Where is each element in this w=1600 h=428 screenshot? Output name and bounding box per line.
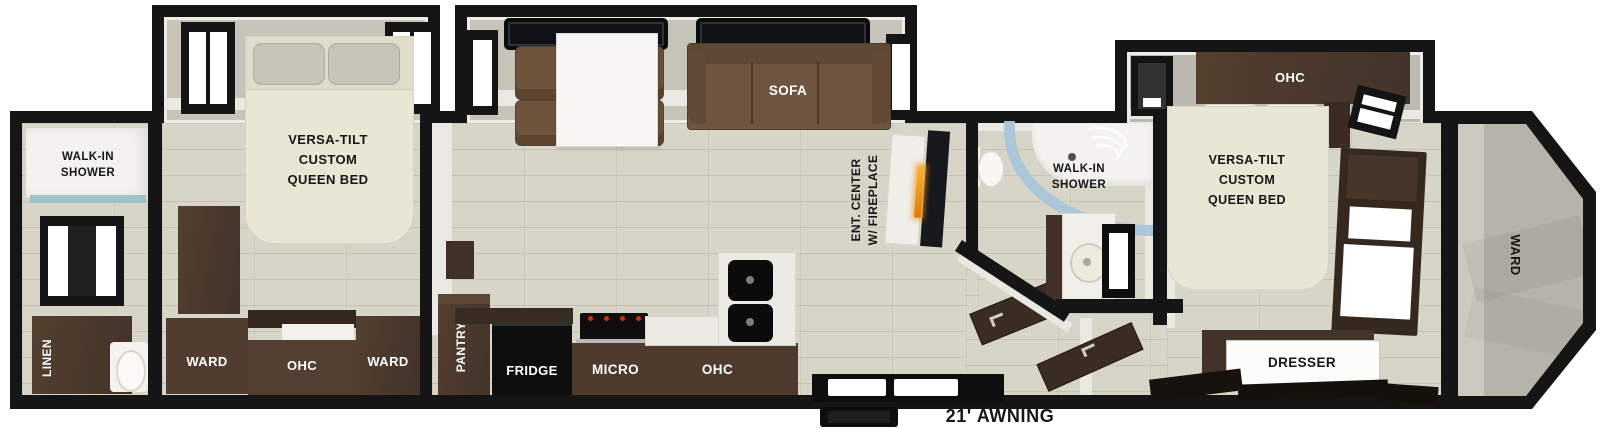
wall-midbath-left (966, 111, 978, 253)
entertainment-center (882, 126, 964, 255)
wall-bedroom-nose (1441, 111, 1457, 409)
living-window-left (467, 30, 498, 115)
rear-bed-pillow-left (253, 43, 325, 85)
front-window-unit (1331, 148, 1431, 338)
dinette-table (556, 33, 658, 147)
front-window-pane-lower (1340, 244, 1414, 320)
rear-ohc-shelf (282, 324, 354, 340)
rear-bedroom-side-cabinet (178, 206, 240, 314)
entry-door-threshold (812, 374, 1004, 402)
front-window-pane-upper (1348, 206, 1412, 241)
entry-exterior-step (820, 407, 898, 427)
living-wall-cabinet (446, 241, 474, 279)
kitchen-sink-upper (728, 260, 773, 301)
stove-cooktop (580, 313, 648, 341)
vanity-cabinet (1046, 215, 1062, 305)
front-ohc-label: OHC (1235, 62, 1345, 92)
kitchen-counter-bottom (645, 316, 727, 346)
dresser-label: DRESSER (1226, 340, 1378, 385)
rear-slide-window-left (181, 22, 235, 114)
linen-label: LINEN (38, 318, 56, 398)
mid-shower-label: WALK-INSHOWER (1040, 158, 1118, 196)
mid-toilet-bowl (977, 150, 1005, 188)
wall-rearbath-bedroom (148, 111, 162, 409)
ent-center-label: ENT. CENTERW/ FIREPLACE (847, 135, 883, 265)
rear-ward-left-label: WARD (166, 346, 248, 376)
rear-ward-right-label: WARD (356, 346, 420, 376)
kitchen-island-counter (718, 252, 796, 346)
dinette-chair (515, 100, 561, 146)
front-bed-label: VERSA-TILTCUSTOMQUEEN BED (1172, 148, 1322, 212)
floorplan-canvas: WALK-INSHOWER LINEN VERSA-TILTCUSTOMQUEE… (0, 0, 1600, 428)
wall-midbath-bedroom (1153, 111, 1167, 325)
kitchen-ohc-label: OHC (660, 355, 775, 383)
wall-rearbedroom-living (420, 111, 432, 409)
awning-label: 21' AWNING (900, 404, 1100, 428)
fridge-label: FRIDGE (492, 356, 572, 384)
rear-bathroom-window (40, 216, 124, 306)
front-ward-label: WARD (1507, 205, 1525, 305)
rear-toilet-bowl (116, 350, 146, 392)
sofa-label: SOFA (687, 72, 889, 108)
kitchen-sink-lower (728, 304, 773, 342)
rear-bed-label: VERSA-TILTCUSTOMQUEEN BED (253, 128, 403, 192)
sofa-backrest (688, 44, 890, 64)
rear-shower-label: WALK-INSHOWER (30, 144, 146, 186)
rear-shower-glass (30, 195, 146, 203)
rear-bed-pillow-right (328, 43, 400, 85)
rear-ohc-label: OHC (248, 350, 356, 380)
micro-label: MICRO (568, 355, 663, 383)
front-window-wood-panel (1346, 154, 1418, 202)
mid-bathroom-window (1102, 224, 1135, 298)
dinette-chair (515, 46, 561, 100)
